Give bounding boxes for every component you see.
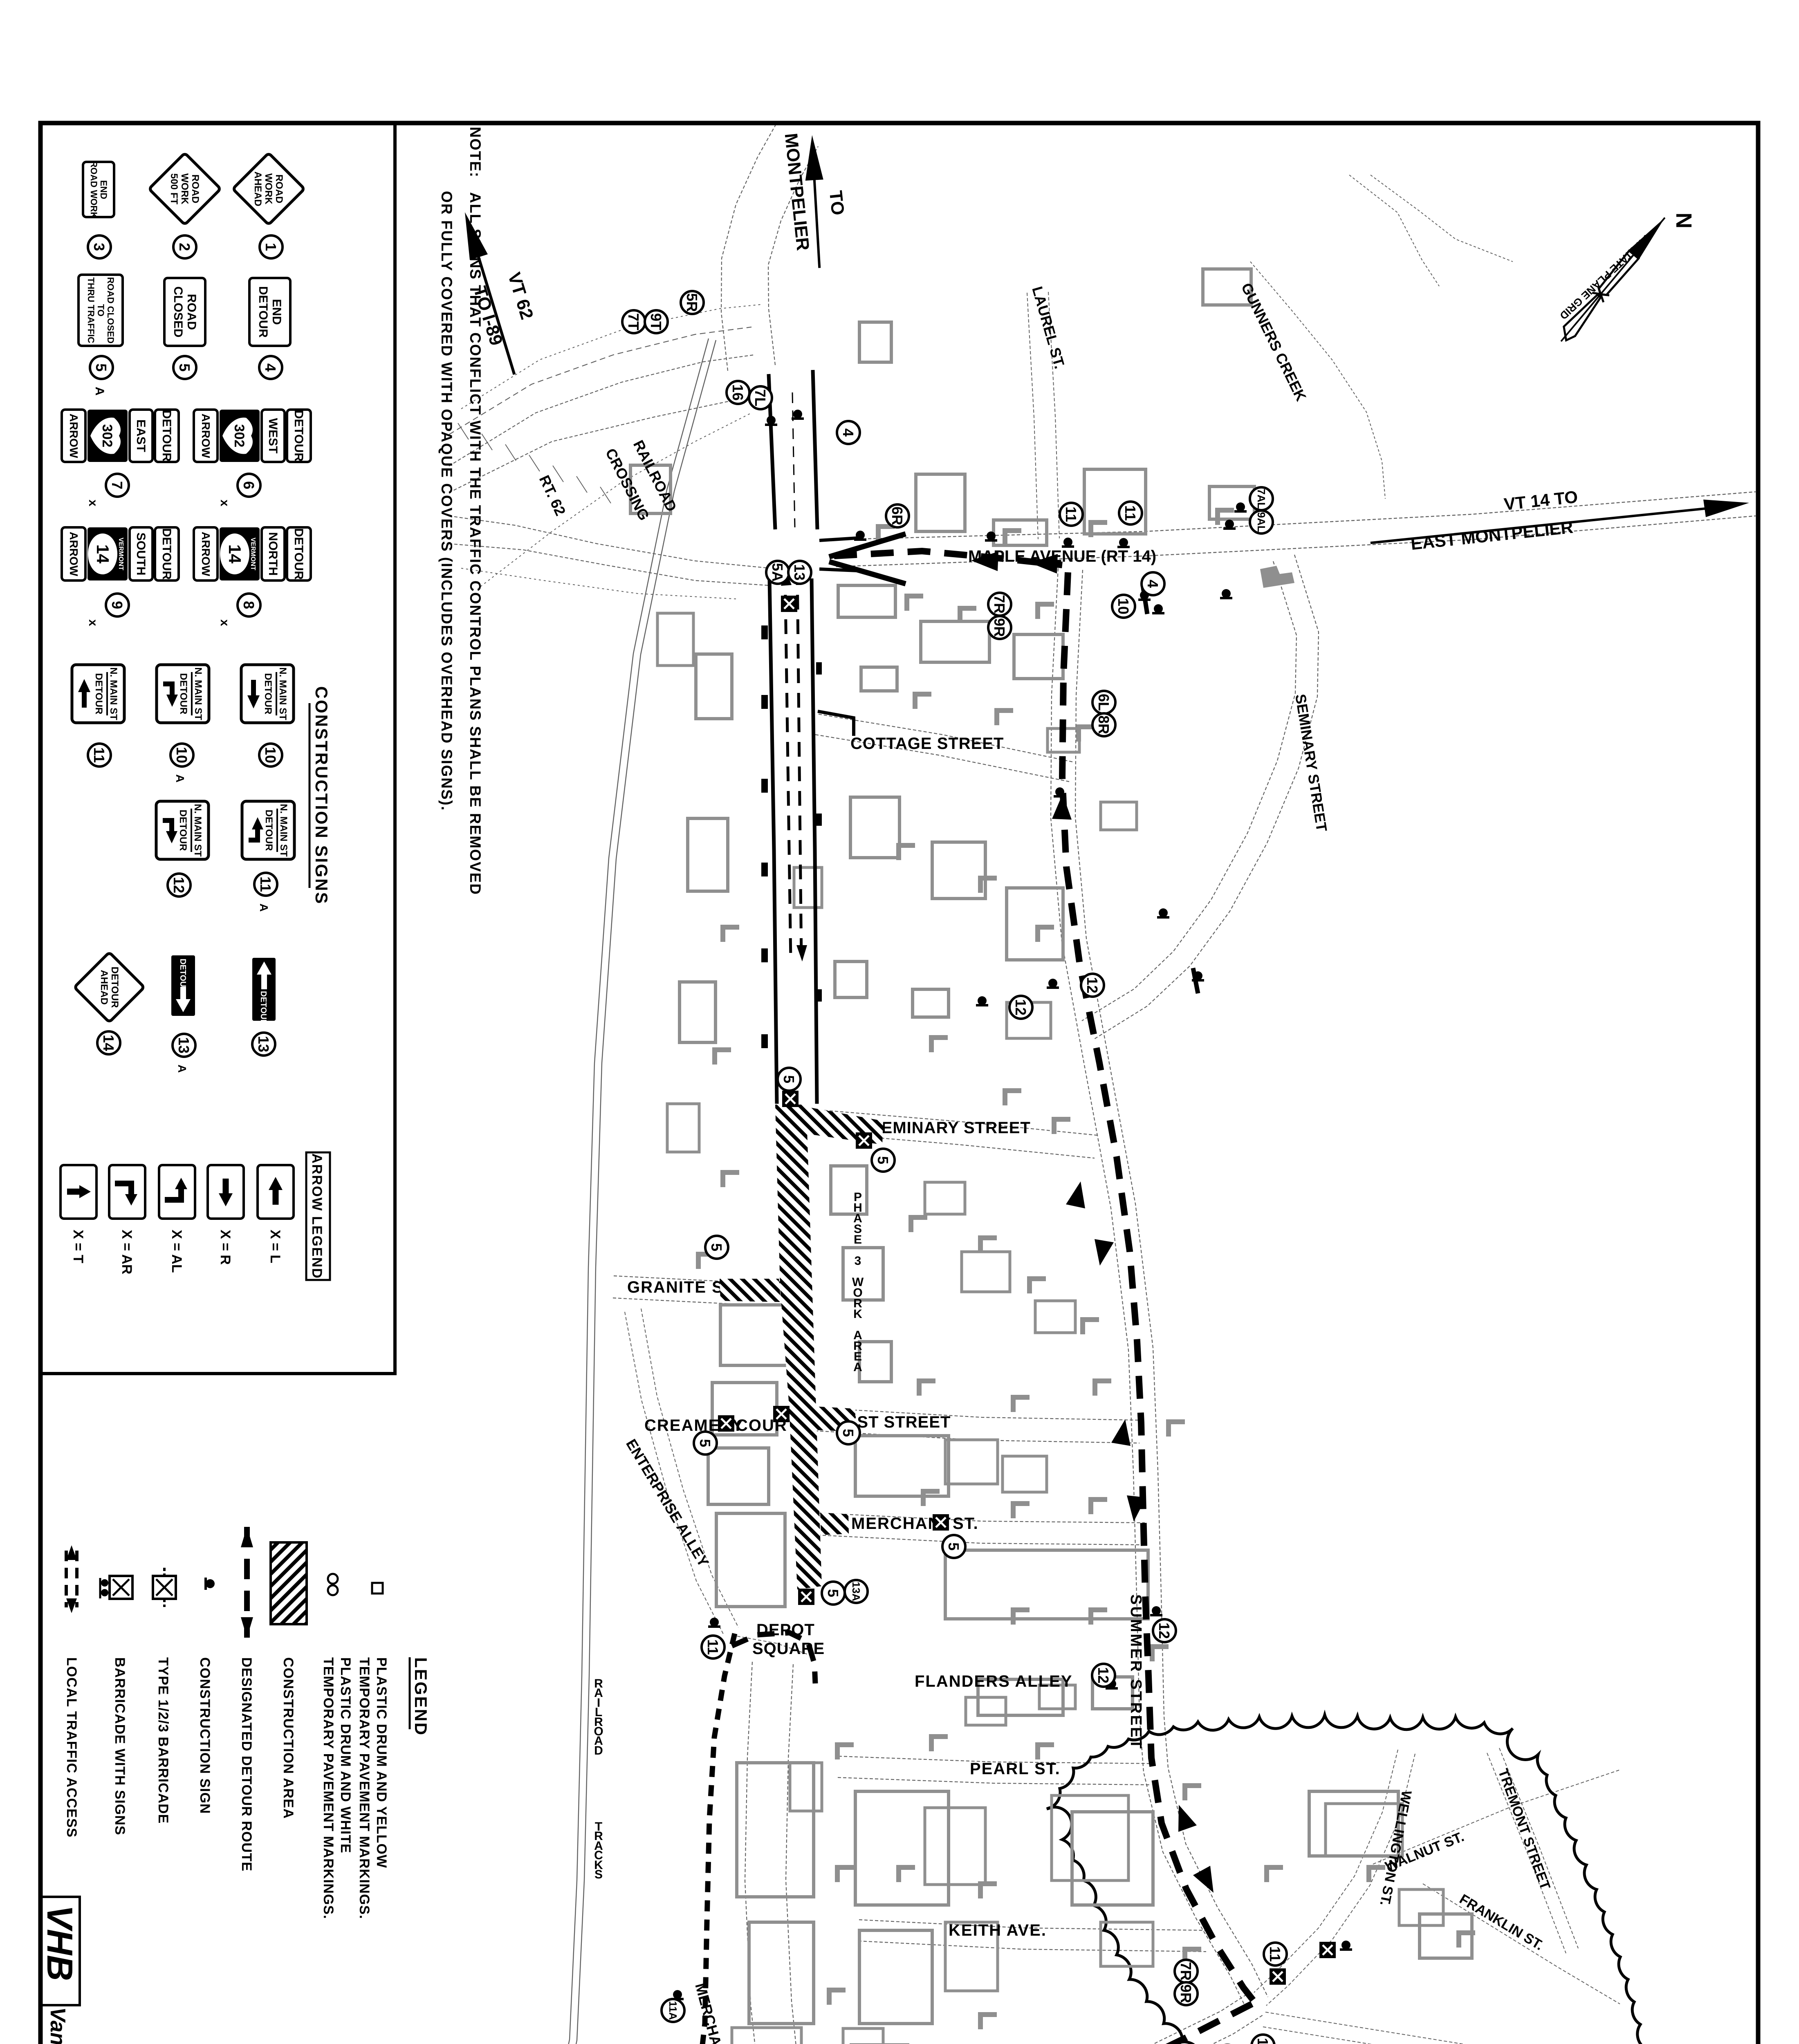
svg-text:AHEAD: AHEAD: [252, 171, 263, 206]
svg-text:A: A: [853, 1360, 862, 1374]
svg-text:DETOUR: DETOUR: [109, 967, 120, 1008]
svg-text:5: 5: [945, 1542, 962, 1551]
svg-text:9R: 9R: [1178, 1984, 1194, 2003]
svg-text:x: x: [218, 500, 231, 507]
svg-text:14: 14: [100, 1035, 117, 1051]
svg-text:PEARL ST.: PEARL ST.: [970, 1760, 1061, 1778]
svg-text:11A: 11A: [667, 2001, 679, 2020]
svg-text:N. MAIN ST: N. MAIN ST: [193, 667, 204, 720]
svg-text:VERMONT: VERMONT: [249, 538, 256, 570]
svg-text:10: 10: [1115, 598, 1132, 614]
svg-text:2: 2: [176, 243, 193, 251]
svg-text:DETOUR: DETOUR: [259, 991, 268, 1026]
svg-text:COTTAGE STREET: COTTAGE STREET: [850, 735, 1004, 753]
svg-text:A: A: [258, 903, 270, 912]
svg-text:10: 10: [1254, 2038, 1271, 2044]
svg-text:N. MAIN ST: N. MAIN ST: [278, 804, 289, 857]
svg-text:LEGEND: LEGEND: [411, 1657, 431, 1736]
svg-text:D: D: [594, 1744, 603, 1757]
svg-text:CLOSED: CLOSED: [171, 286, 185, 337]
svg-text:DETOUR: DETOUR: [292, 528, 305, 580]
svg-text:6R: 6R: [889, 507, 906, 525]
svg-text:ROAD CLOSED: ROAD CLOSED: [105, 277, 116, 344]
svg-text:NOTE:: NOTE:: [467, 127, 484, 178]
svg-text:DETOUR: DETOUR: [256, 286, 270, 338]
svg-text:ARROW: ARROW: [200, 532, 212, 576]
svg-text:DETOUR: DETOUR: [262, 673, 274, 715]
svg-text:KEITH AVE.: KEITH AVE.: [949, 1921, 1047, 1939]
svg-text:TO: TO: [96, 304, 106, 316]
svg-text:6L: 6L: [1095, 694, 1112, 711]
svg-text:5: 5: [825, 1589, 841, 1597]
svg-text:9: 9: [109, 601, 126, 609]
svg-text:DETOUR: DETOUR: [263, 810, 274, 851]
svg-text:5: 5: [708, 1243, 725, 1251]
svg-text:ARROW: ARROW: [67, 532, 80, 576]
svg-text:302: 302: [231, 424, 247, 448]
svg-text:ROAD: ROAD: [274, 175, 285, 204]
svg-text:END: END: [99, 180, 109, 199]
svg-text:X = AR: X = AR: [119, 1230, 135, 1274]
svg-text:11: 11: [1063, 507, 1079, 522]
svg-text:END: END: [270, 299, 283, 325]
svg-text:7AL: 7AL: [1255, 489, 1267, 509]
svg-text:10: 10: [173, 747, 190, 763]
svg-text:AHEAD: AHEAD: [99, 970, 110, 1004]
svg-text:5: 5: [176, 363, 193, 372]
svg-text:5: 5: [781, 1075, 797, 1083]
svg-text:E: E: [854, 1233, 862, 1246]
svg-text:11: 11: [704, 1639, 721, 1655]
svg-text:13: 13: [175, 1037, 192, 1053]
svg-text:5R: 5R: [684, 293, 700, 312]
svg-text:A: A: [93, 387, 106, 396]
svg-text:TEMPORARY PAVEMENT MARKINGS.: TEMPORARY PAVEMENT MARKINGS.: [357, 1657, 372, 1919]
svg-text:BARRICADE WITH SIGNS: BARRICADE WITH SIGNS: [112, 1657, 128, 1836]
svg-text:ST.: ST.: [953, 1515, 979, 1533]
svg-text:WORK: WORK: [263, 173, 274, 205]
svg-text:DETOUR: DETOUR: [292, 410, 305, 462]
svg-text:13: 13: [791, 564, 808, 580]
svg-text:13A: 13A: [850, 1582, 862, 1601]
svg-text:5: 5: [697, 1439, 713, 1447]
svg-text:LOCAL TRAFFIC ACCESS: LOCAL TRAFFIC ACCESS: [64, 1657, 79, 1838]
svg-text:14: 14: [225, 545, 245, 564]
svg-text:TYPE 1/2/3 BARRICADE: TYPE 1/2/3 BARRICADE: [155, 1657, 171, 1824]
svg-text:VHB: VHB: [40, 1905, 80, 1981]
svg-text:X = T: X = T: [70, 1230, 86, 1263]
svg-text:ROAD: ROAD: [185, 294, 198, 330]
svg-text:11: 11: [1122, 505, 1139, 521]
svg-text:7R: 7R: [991, 595, 1008, 614]
svg-text:1: 1: [262, 243, 279, 251]
svg-text:X = L: X = L: [267, 1230, 283, 1263]
svg-text:5: 5: [875, 1156, 891, 1164]
svg-text:X = R: X = R: [218, 1230, 233, 1265]
svg-text:ARROW LEGEND: ARROW LEGEND: [309, 1153, 325, 1279]
svg-text:X = AL: X = AL: [169, 1230, 184, 1273]
svg-text:12: 12: [1012, 999, 1029, 1015]
svg-text:N. MAIN ST: N. MAIN ST: [108, 667, 119, 720]
svg-text:FLANDERS ALLEY: FLANDERS ALLEY: [915, 1672, 1073, 1690]
svg-text:14: 14: [93, 545, 112, 564]
svg-text:EAST: EAST: [134, 419, 148, 452]
svg-text:3: 3: [91, 243, 108, 251]
svg-text:7T: 7T: [625, 313, 642, 330]
svg-text:WEST: WEST: [266, 418, 280, 454]
svg-text:CONSTRUCTION AREA: CONSTRUCTION AREA: [280, 1657, 296, 1819]
svg-text:NORTH: NORTH: [266, 532, 280, 576]
svg-text:11: 11: [1267, 1946, 1283, 1962]
svg-text:DETOUR: DETOUR: [160, 410, 173, 462]
svg-text:DETOUR: DETOUR: [178, 673, 189, 715]
svg-text:11: 11: [91, 747, 108, 763]
svg-text:ARROW: ARROW: [200, 414, 212, 458]
svg-text:N: N: [1671, 213, 1696, 229]
svg-text:11: 11: [257, 876, 274, 892]
svg-text:4: 4: [840, 428, 857, 437]
svg-text:K: K: [853, 1307, 862, 1321]
svg-text:x: x: [218, 619, 231, 626]
svg-text:7: 7: [109, 481, 126, 489]
svg-text:TEMPORARY PAVEMENT MARKINGS.: TEMPORARY PAVEMENT MARKINGS.: [321, 1657, 336, 1919]
svg-text:Vanasse Hangen Brustlin, Inc.: Vanasse Hangen Brustlin, Inc.: [46, 2007, 70, 2044]
svg-text:ARROW: ARROW: [67, 414, 80, 458]
svg-text:DETOUR: DETOUR: [160, 528, 173, 580]
svg-text:500 FT: 500 FT: [168, 173, 179, 204]
svg-text:A: A: [176, 1065, 188, 1073]
svg-text:16: 16: [729, 384, 746, 401]
svg-text:SUMMER STREET: SUMMER STREET: [1127, 1594, 1144, 1750]
svg-text:SOUTH: SOUTH: [134, 533, 148, 576]
svg-text:DESIGNATED DETOUR ROUTE: DESIGNATED DETOUR ROUTE: [239, 1657, 254, 1871]
svg-text:4: 4: [262, 363, 279, 372]
svg-text:12: 12: [1084, 977, 1101, 993]
svg-text:3: 3: [855, 1254, 861, 1268]
svg-text:12: 12: [170, 877, 187, 893]
svg-text:4: 4: [1144, 580, 1161, 588]
svg-text:N. MAIN ST: N. MAIN ST: [192, 804, 203, 857]
svg-text:ROAD WORK: ROAD WORK: [89, 161, 99, 219]
svg-text:CONSTRUCTION SIGNS: CONSTRUCTION SIGNS: [312, 686, 331, 905]
svg-text:12: 12: [1095, 1667, 1112, 1683]
svg-text:THRU TRAFFIC: THRU TRAFFIC: [86, 277, 96, 343]
svg-text:5: 5: [93, 363, 110, 372]
svg-text:PLASTIC DRUM AND YELLOW: PLASTIC DRUM AND YELLOW: [374, 1657, 389, 1868]
svg-text:DETOUR: DETOUR: [93, 673, 104, 715]
svg-text:9T: 9T: [648, 313, 664, 330]
svg-text:9R: 9R: [991, 618, 1008, 637]
svg-text:VERMONT: VERMONT: [117, 538, 124, 570]
svg-text:8: 8: [240, 601, 257, 609]
svg-text:DETOUR: DETOUR: [177, 810, 188, 851]
svg-text:TO: TO: [825, 190, 848, 216]
svg-text:302: 302: [99, 424, 115, 448]
svg-text:6: 6: [240, 481, 257, 489]
svg-text:A: A: [174, 774, 186, 782]
svg-text:5A: 5A: [769, 563, 786, 582]
svg-text:OR FULLY COVERED WITH OPAQUE C: OR FULLY COVERED WITH OPAQUE COVERS (INC…: [438, 191, 455, 811]
svg-text:N. MAIN ST: N. MAIN ST: [277, 667, 288, 720]
svg-text:CONSTRUCTION SIGN: CONSTRUCTION SIGN: [197, 1657, 213, 1814]
svg-text:WORK: WORK: [179, 173, 190, 205]
svg-text:8R: 8R: [1095, 715, 1112, 734]
svg-text:x: x: [86, 619, 100, 626]
svg-text:10: 10: [262, 747, 279, 763]
svg-text:SEMINARY STREET: SEMINARY STREET: [870, 1119, 1031, 1137]
svg-text:12: 12: [1156, 1623, 1173, 1639]
svg-text:5: 5: [840, 1429, 857, 1437]
svg-text:ROAD: ROAD: [190, 175, 201, 204]
svg-text:PLASTIC DRUM AND WHITE: PLASTIC DRUM AND WHITE: [338, 1657, 353, 1853]
svg-text:x: x: [86, 500, 100, 507]
svg-text:7L: 7L: [752, 389, 769, 406]
svg-text:7R: 7R: [1178, 1962, 1194, 1981]
svg-text:9AL: 9AL: [1255, 512, 1267, 532]
svg-text:S: S: [594, 1868, 603, 1881]
svg-text:13: 13: [255, 1036, 272, 1052]
